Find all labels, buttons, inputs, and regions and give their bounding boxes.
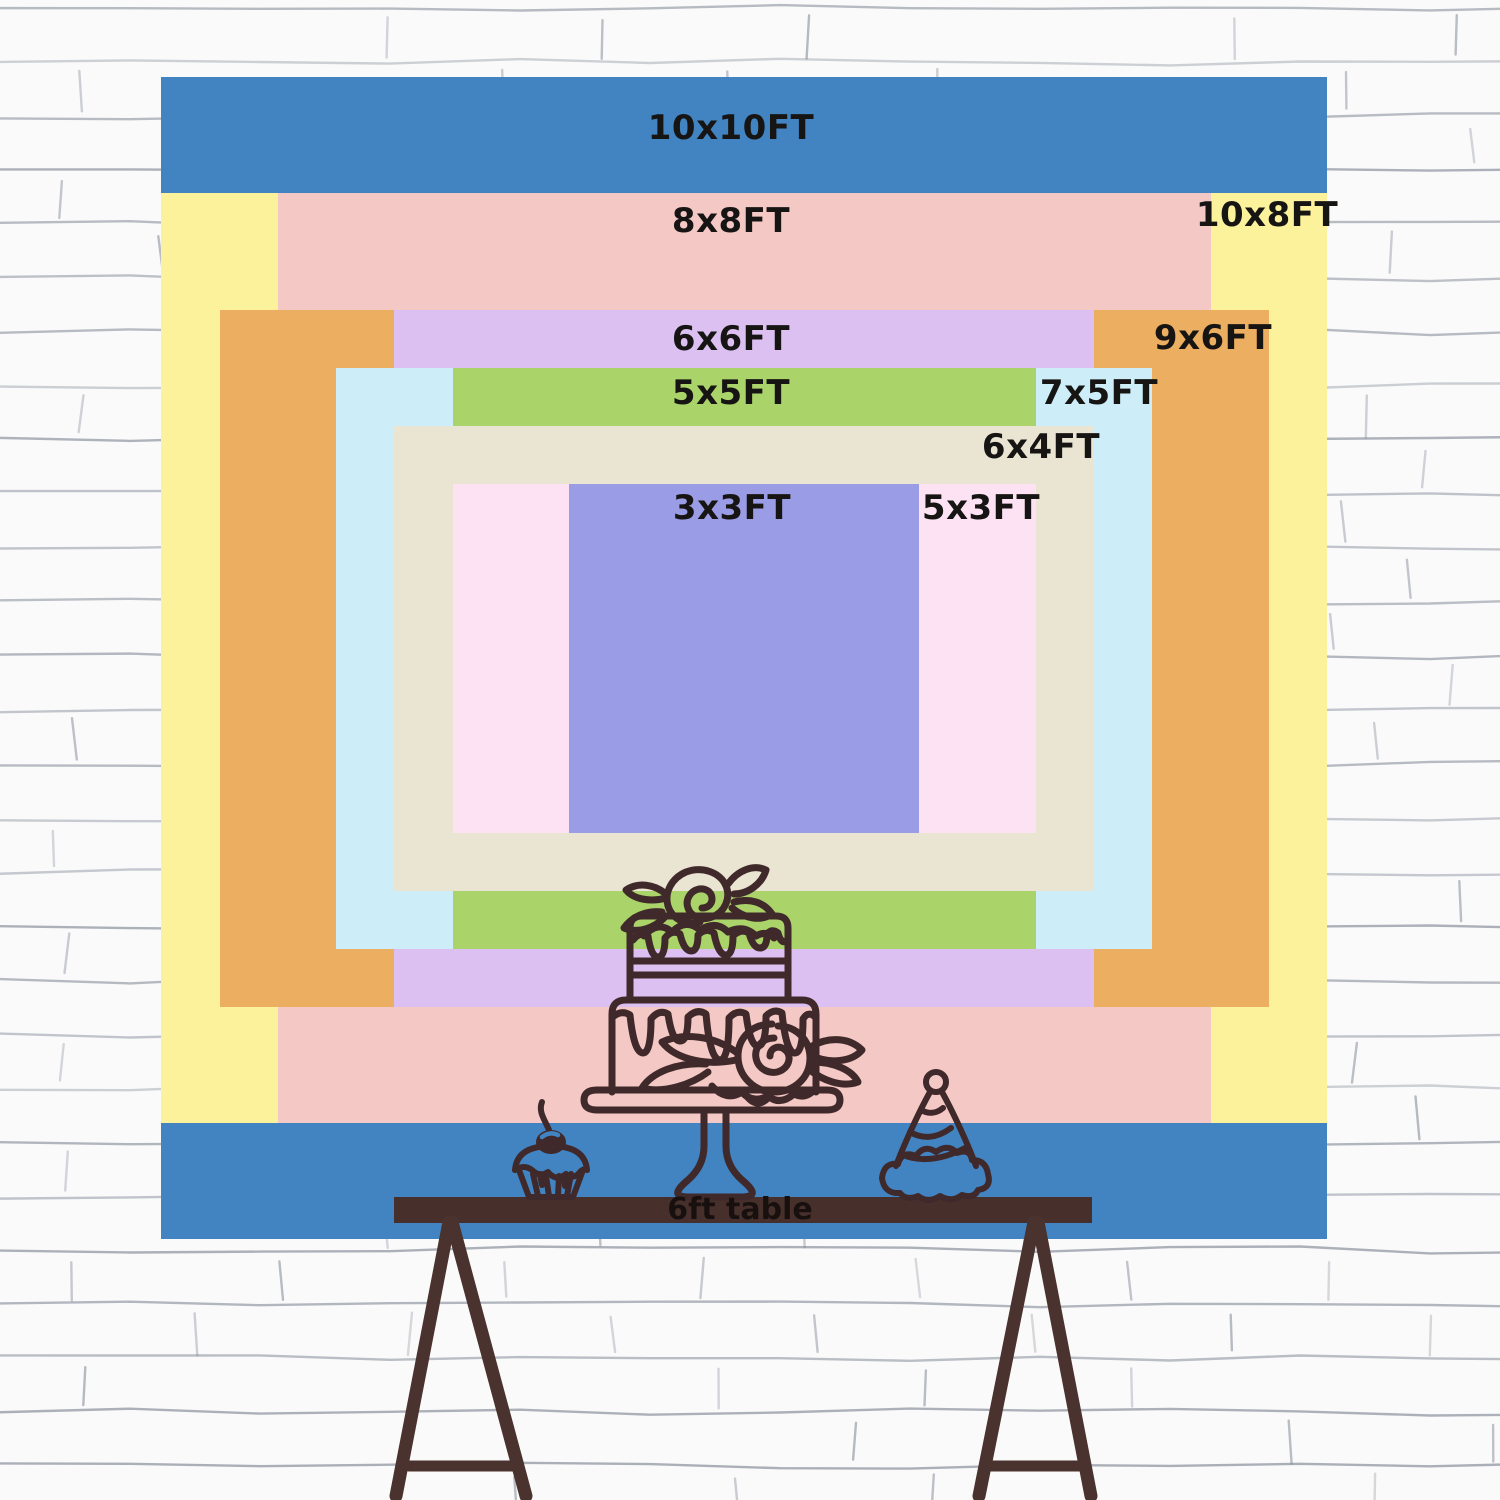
backdrop-size-chart: 10x10FT10x8FT8x8FT9x6FT6x6FT7x5FT5x5FT6x… [0,0,1500,1500]
size-label-10x10ft: 10x10FT [648,111,814,145]
size-label-8x8ft: 8x8FT [672,204,790,238]
size-label-10x8ft: 10x8FT [1196,198,1338,232]
nested-size-rectangles: 10x10FT10x8FT8x8FT9x6FT6x6FT7x5FT5x5FT6x… [0,0,1500,1500]
size-label-3x3ft: 3x3FT [673,491,791,525]
size-label-6x4ft: 6x4FT [982,430,1100,464]
size-label-5x3ft: 5x3FT [922,491,1040,525]
size-label-6x6ft: 6x6FT [672,322,790,356]
size-label-5x5ft: 5x5FT [672,376,790,410]
size-label-9x6ft: 9x6FT [1154,321,1272,355]
size-rect-3x3ft [569,484,919,833]
table-size-label: 6ft table [667,1195,812,1225]
size-label-7x5ft: 7x5FT [1040,376,1158,410]
